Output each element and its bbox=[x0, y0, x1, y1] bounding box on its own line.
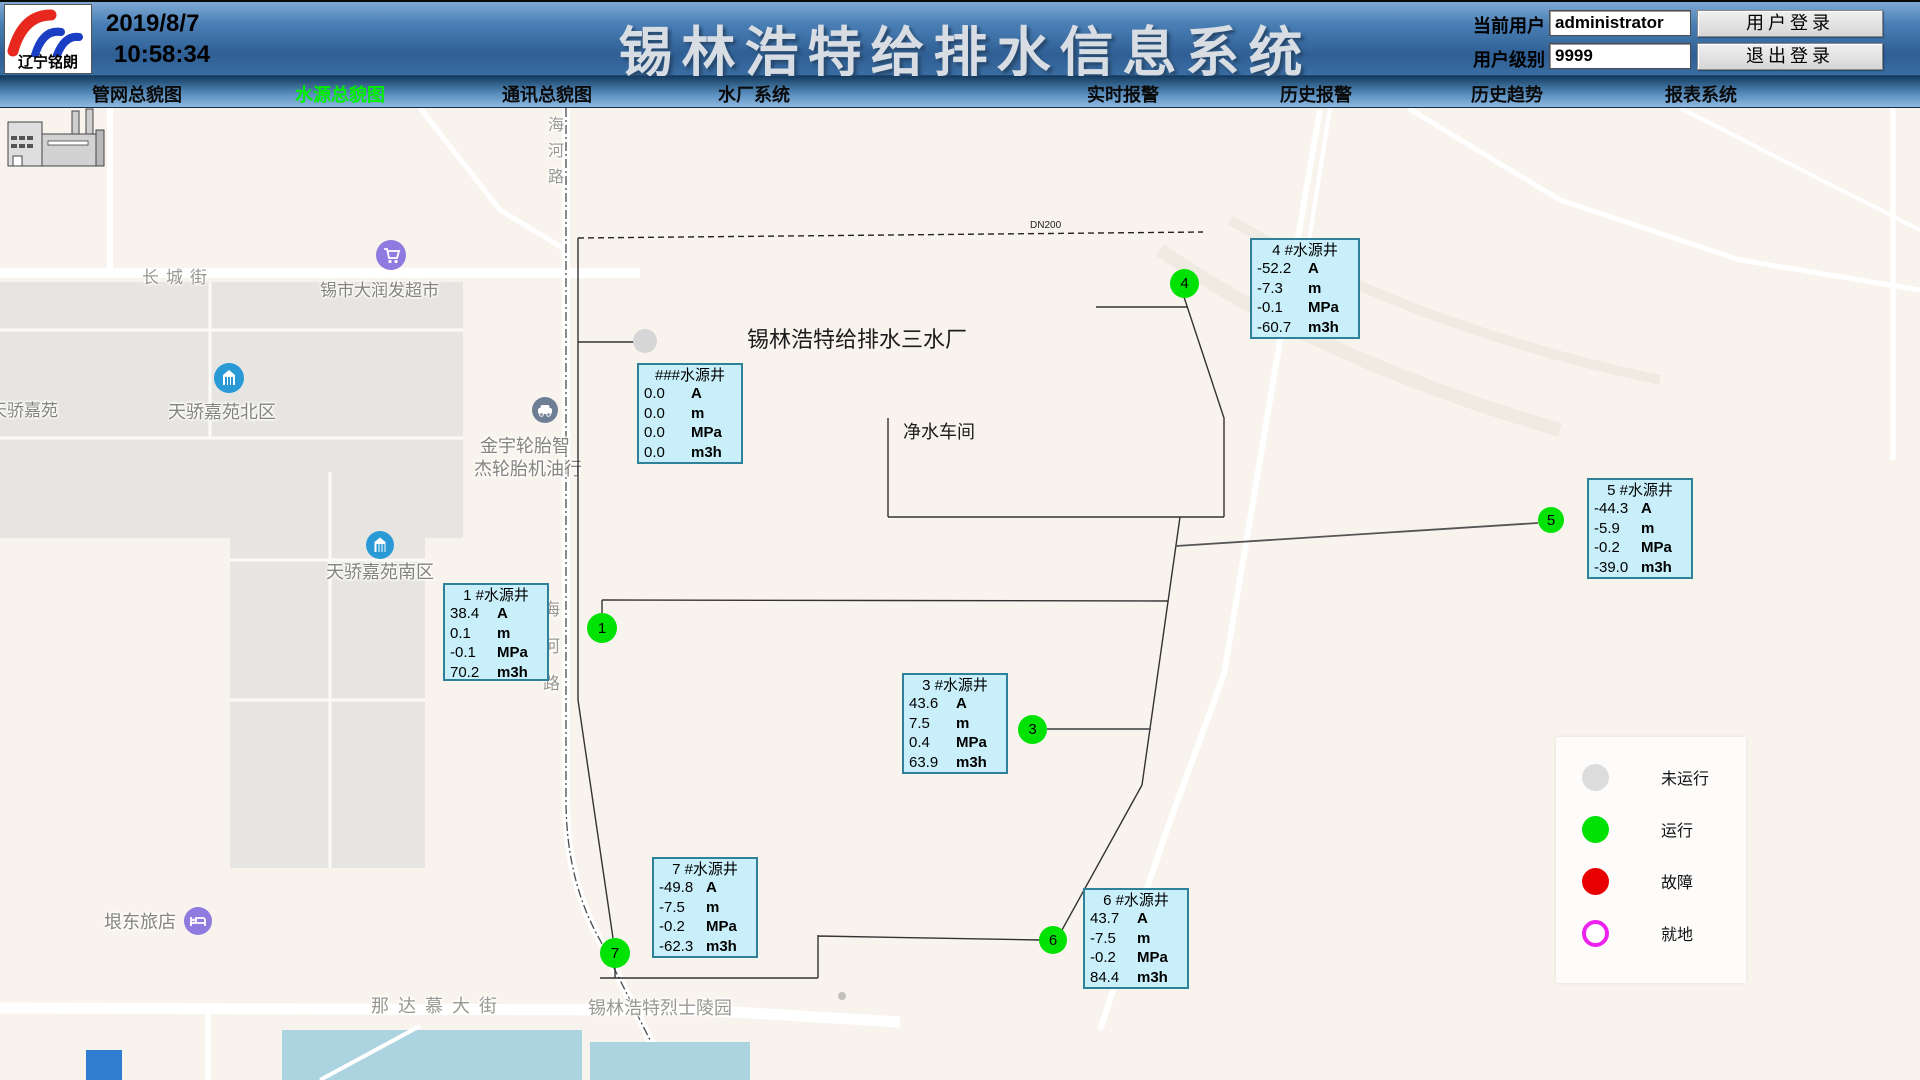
factory-building-icon bbox=[0, 108, 115, 170]
well-7-data-box[interactable]: 7 #水源井 -49.8A -7.5m -0.2MPa -62.3m3h bbox=[652, 857, 758, 958]
datetime: 2019/8/7 10:58:34 bbox=[106, 8, 210, 70]
well-level: -7.5 bbox=[659, 898, 706, 918]
well-title: 7 #水源井 bbox=[654, 859, 756, 878]
legend-label: 故障 bbox=[1661, 869, 1693, 893]
well-title: 5 #水源井 bbox=[1589, 480, 1691, 499]
well-flow: 84.4 bbox=[1090, 968, 1137, 988]
nav-water-plant[interactable]: 水厂系统 bbox=[718, 81, 790, 107]
well-7-marker[interactable]: 7 bbox=[600, 938, 630, 968]
nav-history-alarm[interactable]: 历史报警 bbox=[1280, 81, 1352, 107]
legend-row-stopped: 未运行 bbox=[1556, 751, 1746, 803]
well-flow: -62.3 bbox=[659, 937, 706, 957]
legend-label: 未运行 bbox=[1661, 765, 1709, 789]
well-pressure: -0.2 bbox=[1090, 948, 1137, 968]
running-status-icon bbox=[1582, 816, 1609, 843]
unit-m: m bbox=[691, 404, 737, 424]
nav-history-trend[interactable]: 历史趋势 bbox=[1471, 81, 1543, 107]
unit-mpa: MPa bbox=[1137, 948, 1183, 968]
unit-m: m bbox=[956, 714, 1002, 734]
well-current: -52.2 bbox=[1257, 259, 1308, 279]
company-logo: 辽宁铭朗 bbox=[4, 4, 92, 74]
well-current: -44.3 bbox=[1594, 499, 1641, 519]
status-legend: 未运行 运行 故障 就地 bbox=[1556, 737, 1746, 983]
legend-row-fault: 故障 bbox=[1556, 855, 1746, 907]
current-date: 2019/8/7 bbox=[106, 8, 210, 39]
well-current: 43.7 bbox=[1090, 909, 1137, 929]
unit-mpa: MPa bbox=[497, 643, 543, 663]
well-flow: -39.0 bbox=[1594, 558, 1641, 578]
pipe-dn-label: DN200 bbox=[1030, 220, 1061, 231]
map-canvas: 长城街 海河路 海河路 那达慕大街 锡林浩特烈士陵园 锡市大润发超市 天骄嘉苑 … bbox=[0, 108, 1920, 1080]
well-level: -5.9 bbox=[1594, 519, 1641, 539]
user-level-field[interactable]: 9999 bbox=[1549, 43, 1691, 69]
well-level: -7.3 bbox=[1257, 279, 1308, 299]
unit-mpa: MPa bbox=[1641, 538, 1687, 558]
well-title: 3 #水源井 bbox=[904, 675, 1006, 694]
well-title: ###水源井 bbox=[639, 365, 741, 384]
well-pressure: 0.4 bbox=[909, 733, 956, 753]
stopped-status-icon bbox=[1582, 764, 1609, 791]
nav-communication[interactable]: 通讯总貌图 bbox=[502, 81, 592, 107]
well-pressure: 0.0 bbox=[644, 423, 691, 443]
well-current: 38.4 bbox=[450, 604, 497, 624]
well-5-data-box[interactable]: 5 #水源井 -44.3A -5.9m -0.2MPa -39.0m3h bbox=[1587, 478, 1693, 579]
well-flow: 70.2 bbox=[450, 663, 497, 683]
well-title: 1 #水源井 bbox=[445, 585, 547, 604]
well-4-marker[interactable]: 4 bbox=[1170, 269, 1199, 298]
unit-m: m bbox=[706, 898, 752, 918]
well-pressure: -0.2 bbox=[659, 917, 706, 937]
unit-mpa: MPa bbox=[691, 423, 737, 443]
well-flow: 0.0 bbox=[644, 443, 691, 463]
well-title: 6 #水源井 bbox=[1085, 890, 1187, 909]
unit-m: m bbox=[1137, 929, 1183, 949]
well-current: 0.0 bbox=[644, 384, 691, 404]
unit-m: m bbox=[497, 624, 543, 644]
unit-m: m bbox=[1641, 519, 1687, 539]
nav-water-source[interactable]: 水源总貌图 bbox=[295, 81, 385, 107]
well-level: -7.5 bbox=[1090, 929, 1137, 949]
current-time: 10:58:34 bbox=[106, 39, 210, 70]
well-current: 43.6 bbox=[909, 694, 956, 714]
well-current: -49.8 bbox=[659, 878, 706, 898]
well-5-marker[interactable]: 5 bbox=[1538, 507, 1564, 533]
unit-m3h: m3h bbox=[1308, 318, 1354, 338]
unit-a: A bbox=[1137, 909, 1183, 929]
unit-a: A bbox=[956, 694, 1002, 714]
well-title: 4 #水源井 bbox=[1252, 240, 1358, 259]
unit-m3h: m3h bbox=[1641, 558, 1687, 578]
well-3-data-box[interactable]: 3 #水源井 43.6A 7.5m 0.4MPa 63.9m3h bbox=[902, 673, 1008, 774]
unit-m3h: m3h bbox=[706, 937, 752, 957]
unit-m3h: m3h bbox=[497, 663, 543, 683]
plant-title: 锡林浩特给排水三水厂 bbox=[737, 322, 977, 354]
well-flow: -60.7 bbox=[1257, 318, 1308, 338]
current-user-label: 当前用户 bbox=[1473, 12, 1545, 38]
legend-row-running: 运行 bbox=[1556, 803, 1746, 855]
well-2-marker[interactable] bbox=[633, 329, 657, 353]
well-level: 0.0 bbox=[644, 404, 691, 424]
legend-label: 就地 bbox=[1661, 921, 1693, 945]
legend-row-local: 就地 bbox=[1556, 907, 1746, 959]
nav-pipe-network[interactable]: 管网总貌图 bbox=[92, 81, 182, 107]
current-user-field[interactable]: administrator bbox=[1549, 10, 1691, 36]
well-1-data-box[interactable]: 1 #水源井 38.4A 0.1m -0.1MPa 70.2m3h bbox=[443, 583, 549, 681]
nav-realtime-alarm[interactable]: 实时报警 bbox=[1087, 81, 1159, 107]
fault-status-icon bbox=[1582, 868, 1609, 895]
well-pressure: -0.1 bbox=[1257, 298, 1308, 318]
unit-a: A bbox=[497, 604, 543, 624]
unit-mpa: MPa bbox=[1308, 298, 1354, 318]
unit-a: A bbox=[1308, 259, 1354, 279]
unit-a: A bbox=[1641, 499, 1687, 519]
well-level: 7.5 bbox=[909, 714, 956, 734]
well-pressure: -0.2 bbox=[1594, 538, 1641, 558]
nav-report-system[interactable]: 报表系统 bbox=[1665, 81, 1737, 107]
workshop-label: 净水车间 bbox=[903, 418, 975, 444]
well-2-data-box[interactable]: ###水源井 0.0A 0.0m 0.0MPa 0.0m3h bbox=[637, 363, 743, 464]
unit-mpa: MPa bbox=[956, 733, 1002, 753]
unit-m3h: m3h bbox=[1137, 968, 1183, 988]
legend-label: 运行 bbox=[1661, 817, 1693, 841]
well-1-marker[interactable]: 1 bbox=[587, 613, 617, 643]
header-bar: 辽宁铭朗 2019/8/7 10:58:34 锡林浩特给排水信息系统 当前用户 … bbox=[0, 0, 1920, 76]
well-6-data-box[interactable]: 6 #水源井 43.7A -7.5m -0.2MPa 84.4m3h bbox=[1083, 888, 1189, 989]
main-nav: 管网总貌图 水源总貌图 通讯总貌图 水厂系统 实时报警 历史报警 历史趋势 报表… bbox=[0, 76, 1920, 108]
unit-mpa: MPa bbox=[706, 917, 752, 937]
unit-a: A bbox=[706, 878, 752, 898]
unit-m3h: m3h bbox=[956, 753, 1002, 773]
unit-a: A bbox=[691, 384, 737, 404]
logout-button[interactable]: 退出登录 bbox=[1697, 43, 1883, 70]
user-level-label: 用户级别 bbox=[1473, 46, 1545, 72]
unit-m3h: m3h bbox=[691, 443, 737, 463]
well-flow: 63.9 bbox=[909, 753, 956, 773]
logo-arcs-icon bbox=[5, 5, 91, 57]
login-button[interactable]: 用户登录 bbox=[1697, 10, 1883, 37]
well-level: 0.1 bbox=[450, 624, 497, 644]
well-pressure: -0.1 bbox=[450, 643, 497, 663]
well-6-marker[interactable]: 6 bbox=[1039, 926, 1067, 954]
well-4-data-box[interactable]: 4 #水源井 -52.2A -7.3m -0.1MPa -60.7m3h bbox=[1250, 238, 1360, 339]
local-status-icon bbox=[1582, 920, 1609, 947]
logo-text: 辽宁铭朗 bbox=[5, 51, 91, 72]
well-3-marker[interactable]: 3 bbox=[1018, 715, 1047, 744]
unit-m: m bbox=[1308, 279, 1354, 299]
